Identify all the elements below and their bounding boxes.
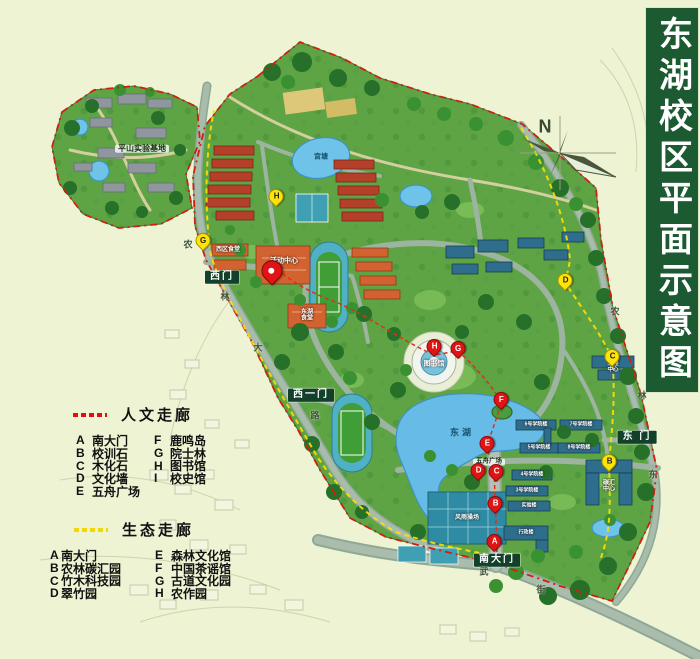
road-char-east-1: 林: [637, 391, 646, 400]
compass-north-label: N: [539, 117, 552, 138]
humanities-dash-swatch: [73, 413, 107, 417]
legend-humanities-title: 人文走廊: [121, 404, 193, 425]
road-char-east-2: 东: [648, 470, 657, 479]
label-admin-building: 行政楼: [518, 530, 533, 535]
road-char-east-0: 农: [610, 307, 619, 316]
label-lab-building: 实验楼: [521, 503, 536, 508]
label-donghu-canteen: 东湖食堂: [300, 310, 314, 323]
label-west-canteen: 西区食堂: [216, 247, 240, 253]
legend-item: I校史馆: [154, 472, 206, 485]
label-pingshan-base: 平山实验基地: [115, 145, 169, 153]
label-college-5: 5号学院楼: [528, 445, 551, 450]
gate-label-east: 东 门: [618, 431, 657, 444]
label-indoor-gym: 风雨操场: [455, 515, 479, 521]
road-char-west-0: 农: [183, 240, 192, 249]
legend-humanities: 人文走廊 A南大门 B校训石 C木化石 D文化墙 E五舟广场 F鹿鸣岛 G院士林…: [73, 404, 206, 497]
label-carbon-center: 碳汇中心: [602, 481, 616, 494]
label-college-7: 7号学院楼: [570, 422, 593, 427]
road-char-south-0: 武: [479, 567, 488, 576]
legend-item: E五舟广场: [76, 485, 154, 498]
label-gongtang-pond: 宫塘: [314, 153, 328, 160]
road-char-west-3: 路: [310, 411, 319, 420]
ecology-dash-swatch: [74, 528, 108, 532]
label-college-6: 6号学院楼: [525, 422, 548, 427]
road-char-west-1: 林: [220, 292, 229, 301]
label-college-3: 3号学院楼: [516, 488, 539, 493]
label-library: 图书馆: [424, 360, 445, 367]
label-college-4: 4号学院楼: [521, 472, 544, 477]
label-college-8: 8号学院楼: [568, 445, 591, 450]
legend-ecology: 生态走廊 A南大门 B农林碳汇园 C竹木科技园 D翠竹园 E森林文化馆 F中国茶…: [50, 519, 231, 600]
legend-ecology-title: 生态走廊: [122, 519, 194, 540]
gate-label-west-one: 西一门: [288, 389, 334, 402]
page-title: 东湖校区平面示意图: [648, 16, 697, 385]
campus-map-poster: 东湖校区平面示意图 N 西门 西一门 东 门 南大门 平山实验基地 宫塘 东湖 …: [0, 0, 700, 659]
road-char-west-2: 大: [253, 343, 262, 352]
gate-label-south: 南大门: [474, 554, 520, 567]
road-char-south-1: 街: [536, 585, 545, 594]
title-banner: 东湖校区平面示意图: [646, 8, 698, 392]
gate-label-west: 西门: [205, 271, 239, 284]
label-east-lake: 东湖: [450, 428, 474, 437]
